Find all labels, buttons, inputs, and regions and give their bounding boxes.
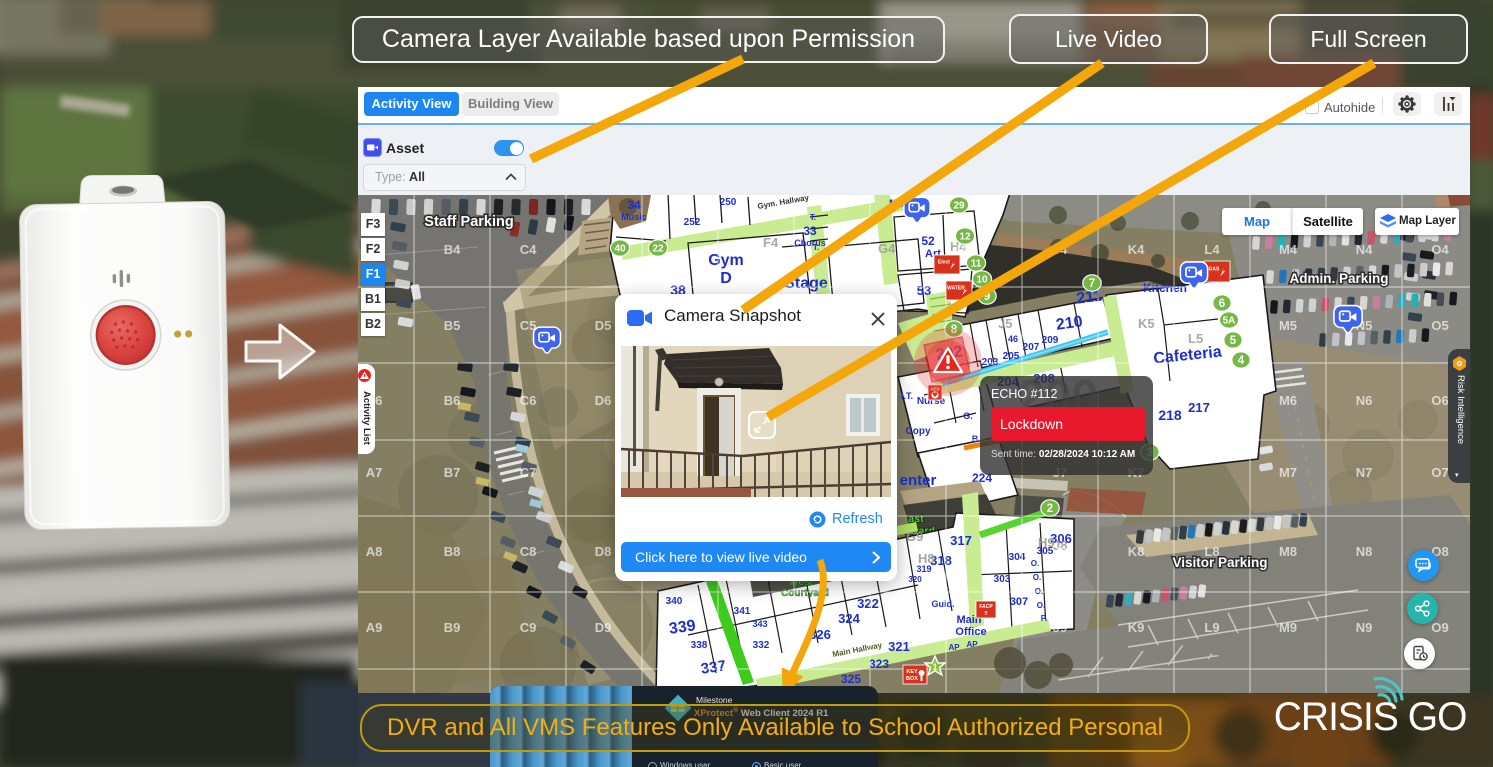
svg-text:5: 5 [1230, 335, 1237, 347]
svg-text:207: 207 [1023, 342, 1040, 353]
svg-text:6: 6 [1219, 298, 1225, 310]
svg-text:Elect: Elect [938, 260, 950, 266]
svg-text:M9: M9 [1279, 620, 1297, 635]
svg-text:M5: M5 [1279, 318, 1297, 333]
svg-text:322: 322 [857, 596, 879, 611]
svg-text:317: 317 [950, 533, 972, 548]
svg-text:WATER: WATER [947, 286, 965, 292]
svg-text:209: 209 [1042, 335, 1059, 346]
svg-text:9: 9 [984, 291, 990, 303]
svg-text:enter: enter [900, 472, 937, 489]
svg-text:KEY: KEY [906, 669, 918, 675]
svg-text:C8: C8 [520, 544, 537, 559]
svg-text:337: 337 [700, 657, 727, 677]
svg-text:J9: J9 [1053, 620, 1067, 635]
svg-text:218: 218 [1158, 407, 1182, 423]
svg-text:FACP: FACP [979, 604, 993, 610]
svg-text:K5: K5 [1138, 316, 1155, 331]
svg-text:AP: AP [948, 643, 960, 652]
svg-text:Courtyard: Courtyard [781, 588, 829, 599]
svg-text:Gym: Gym [708, 252, 744, 269]
svg-text:B6: B6 [444, 393, 461, 408]
svg-text:Admin. Parking: Admin. Parking [1289, 271, 1388, 286]
svg-text:2: 2 [1047, 503, 1053, 515]
svg-text:D5: D5 [595, 318, 612, 333]
svg-text:320: 320 [908, 575, 922, 584]
svg-text:C7: C7 [520, 465, 537, 480]
svg-text:T.: T. [813, 243, 819, 252]
svg-text:A8: A8 [366, 544, 383, 559]
svg-text:O.: O. [1031, 559, 1039, 568]
svg-text:1: 1 [932, 662, 937, 672]
svg-text:Kitchen: Kitchen [1143, 281, 1187, 295]
svg-text:C9: C9 [520, 620, 537, 635]
svg-text:Guid.: Guid. [932, 599, 955, 609]
svg-text:B: B [972, 434, 979, 444]
svg-text:M6: M6 [1279, 393, 1297, 408]
svg-text:J4: J4 [1053, 242, 1068, 257]
svg-text:L9: L9 [1204, 620, 1219, 635]
svg-text:O5: O5 [1431, 318, 1448, 333]
svg-text:324: 324 [838, 611, 860, 626]
svg-text:D6: D6 [595, 393, 612, 408]
svg-text:J5: J5 [998, 316, 1012, 331]
svg-text:!!: !! [984, 611, 988, 617]
svg-text:G4: G4 [878, 241, 896, 256]
svg-text:D9: D9 [595, 620, 612, 635]
svg-text:A9: A9 [366, 620, 383, 635]
svg-text:P.: P. [1041, 614, 1048, 623]
svg-text:Stage: Stage [784, 275, 828, 292]
svg-text:217: 217 [1188, 400, 1210, 415]
svg-text:Chorus: Chorus [794, 238, 826, 248]
svg-text:G9: G9 [906, 529, 923, 544]
svg-text:B8: B8 [444, 544, 461, 559]
svg-text:29: 29 [953, 201, 965, 212]
svg-text:321: 321 [888, 639, 910, 654]
svg-text:33: 33 [803, 224, 817, 238]
svg-text:N8: N8 [1356, 544, 1373, 559]
svg-text:K8: K8 [1128, 544, 1145, 559]
svg-text:338: 338 [691, 640, 708, 651]
svg-text:Copy: Copy [906, 426, 931, 437]
svg-text:O.: O. [1033, 573, 1041, 582]
svg-text:303: 303 [994, 574, 1011, 585]
svg-text:N7: N7 [1356, 465, 1373, 480]
svg-text:341: 341 [734, 606, 751, 617]
svg-text:304: 304 [1009, 552, 1026, 563]
svg-text:F4: F4 [763, 235, 779, 250]
svg-text:O6: O6 [1431, 393, 1448, 408]
svg-text:C4: C4 [520, 242, 537, 257]
svg-text:O.: O. [1037, 601, 1045, 610]
svg-text:N4: N4 [1356, 242, 1373, 257]
svg-text:326: 326 [809, 627, 831, 642]
svg-text:325: 325 [841, 672, 861, 686]
svg-text:5A: 5A [1223, 316, 1236, 327]
svg-text:H8: H8 [918, 551, 935, 566]
svg-text:M8: M8 [1279, 544, 1297, 559]
svg-text:343: 343 [752, 619, 767, 629]
svg-text:L4: L4 [1204, 242, 1220, 257]
svg-text:52: 52 [921, 234, 935, 248]
svg-text:BOX: BOX [906, 676, 918, 682]
svg-text:22: 22 [652, 244, 664, 255]
svg-text:12: 12 [959, 232, 971, 243]
svg-text:O7: O7 [1431, 465, 1448, 480]
svg-text:340: 340 [666, 596, 683, 607]
svg-text:34: 34 [627, 198, 641, 212]
svg-text:11: 11 [971, 259, 982, 270]
svg-text:Music: Music [621, 212, 647, 222]
svg-text:J8: J8 [1053, 544, 1067, 559]
svg-text:A7: A7 [366, 465, 383, 480]
svg-text:B4: B4 [444, 242, 461, 257]
svg-text:D8: D8 [595, 544, 612, 559]
svg-text:B9: B9 [444, 620, 461, 635]
svg-text:B5: B5 [444, 318, 461, 333]
svg-text:250: 250 [720, 197, 737, 208]
svg-text:M4: M4 [1279, 242, 1298, 257]
svg-text:AP: AP [966, 640, 978, 649]
svg-text:L5: L5 [1188, 331, 1203, 346]
svg-text:M7: M7 [1279, 465, 1297, 480]
svg-text:46: 46 [1008, 334, 1018, 344]
svg-text:B7: B7 [444, 465, 461, 480]
svg-text:G.: G. [963, 411, 973, 421]
svg-text:40: 40 [614, 244, 626, 255]
svg-text:CRISIS GO: CRISIS GO [1274, 695, 1467, 738]
svg-text:Staff Parking: Staff Parking [424, 214, 513, 230]
svg-text:332: 332 [753, 640, 770, 651]
svg-text:Visitor Parking: Visitor Parking [1172, 555, 1267, 570]
svg-text:I.T.: I.T. [901, 391, 913, 401]
svg-text:7: 7 [1089, 278, 1095, 290]
svg-text:4: 4 [1238, 355, 1245, 367]
svg-text:N9: N9 [1356, 620, 1373, 635]
svg-text:N6: N6 [1356, 393, 1373, 408]
svg-text:C6: C6 [520, 393, 537, 408]
svg-text:GAS: GAS [1208, 266, 1220, 272]
svg-text:Office: Office [955, 626, 986, 638]
svg-text:K4: K4 [1128, 242, 1145, 257]
svg-text:307: 307 [1010, 596, 1028, 608]
svg-text:K9: K9 [1128, 620, 1145, 635]
svg-text:10: 10 [976, 275, 988, 286]
svg-text:D: D [720, 270, 732, 287]
svg-text:O4: O4 [1431, 242, 1449, 257]
svg-text:252: 252 [684, 217, 701, 228]
svg-text:T.: T. [810, 213, 816, 222]
svg-text:205: 205 [1003, 351, 1020, 362]
